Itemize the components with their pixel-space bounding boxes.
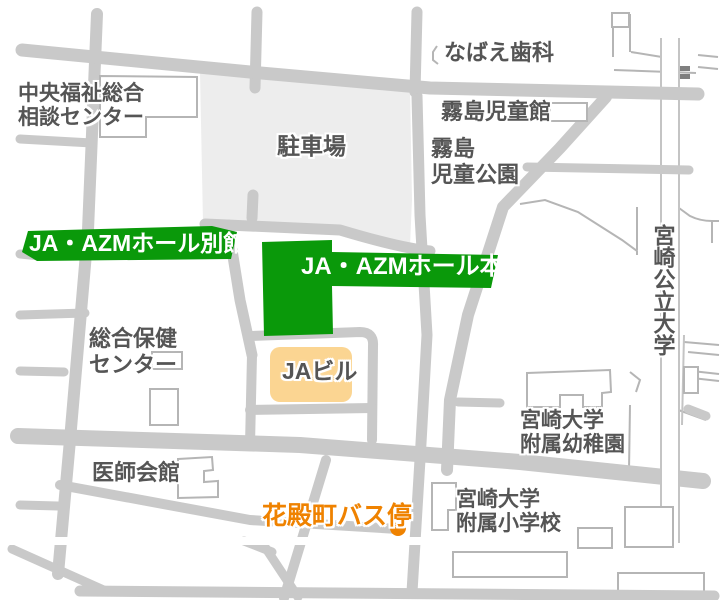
building-shogakko-1 (625, 507, 673, 547)
label-nabae-dental: なばえ歯科 (444, 40, 554, 66)
building-hoken-2 (150, 389, 178, 425)
label-ja-building: JAビル (282, 358, 357, 385)
building-shogakko-2 (578, 528, 612, 548)
label-kirishima-jidokan: 霧島児童館 (441, 99, 551, 125)
label-kirishima-park: 霧島 児童公園 (431, 136, 519, 187)
label-fuzoku-yochien: 宮崎大学 附属幼稚園 (520, 409, 625, 458)
label-bus-stop: 花殿町バス停 (262, 502, 412, 531)
label-parking-lot: 駐車場 (277, 133, 346, 160)
building-kirishima-jidokan (550, 103, 587, 121)
area-map: 中央福祉総合 相談センター なばえ歯科 霧島児童館 霧島 児童公園 駐車場 JA… (0, 0, 720, 600)
building-shogakko-4 (432, 483, 456, 530)
label-fuzoku-shogakko: 宮崎大学 附属小学校 (456, 488, 561, 537)
label-sogo-hoken-center: 総合保健 センター (89, 326, 177, 377)
label-miyazaki-koritsu-univ: 宮崎公立大学 (650, 224, 676, 364)
building-ishi-kaikan (178, 457, 218, 498)
label-chuo-fukushi-center: 中央福祉総合 相談センター (18, 82, 144, 131)
label-azm-bekkan: JA・AZMホール別館 (29, 230, 246, 257)
building-koritsu-univ (684, 367, 698, 393)
building-yochien (527, 370, 611, 407)
building-shogakko-3 (453, 552, 567, 577)
label-azm-honkan: JA・AZMホール本館 (301, 253, 528, 281)
building-topright (612, 13, 629, 27)
label-ishi-kaikan: 医師会館 (92, 460, 180, 486)
